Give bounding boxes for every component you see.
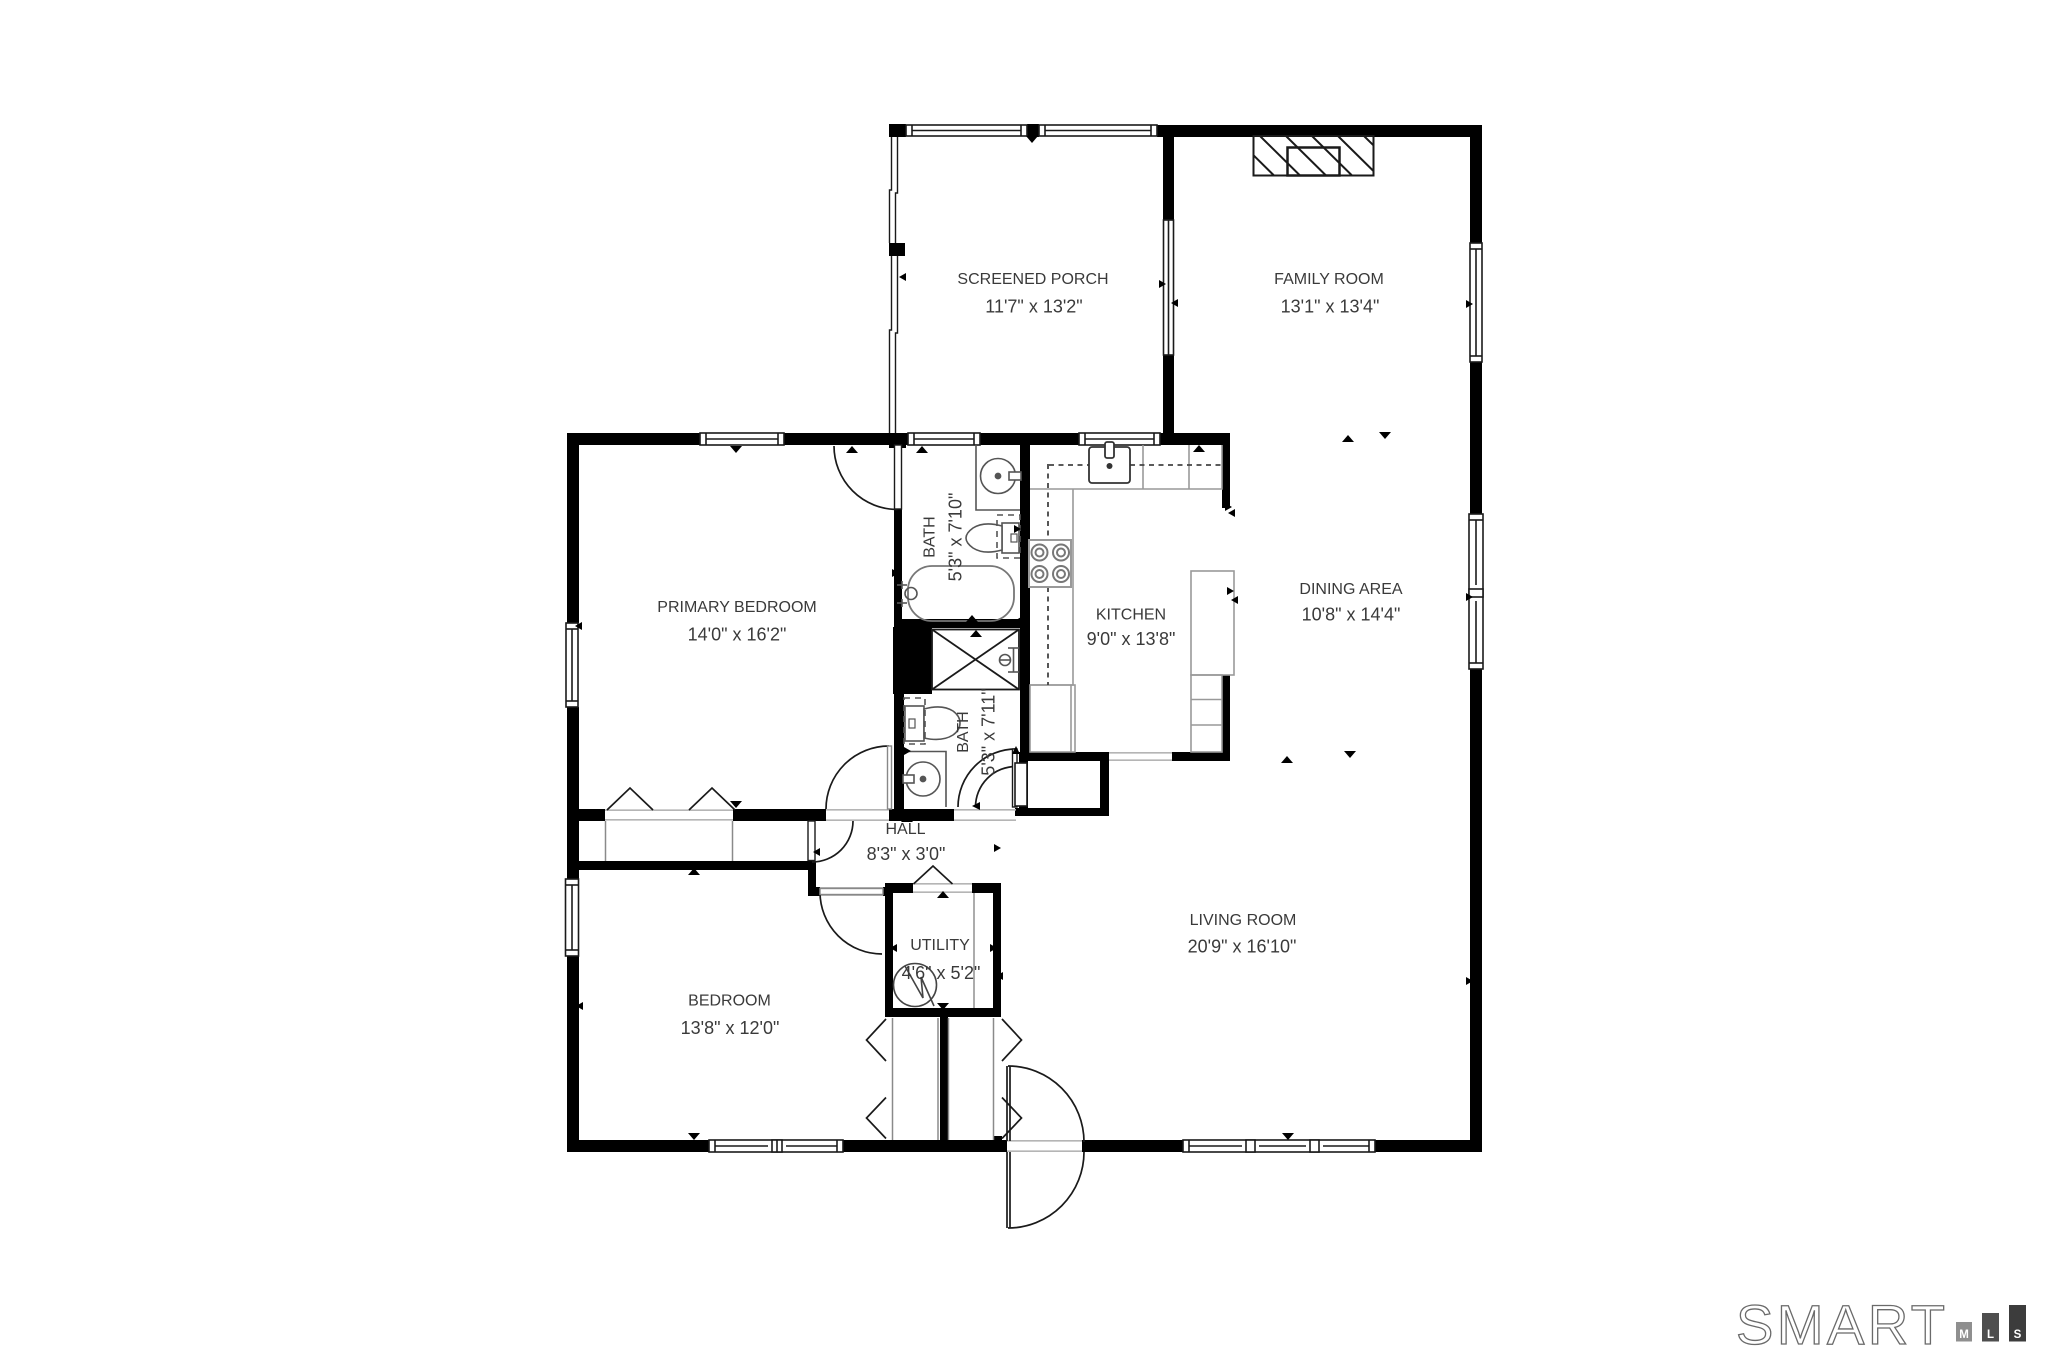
svg-text:20'9" x 16'10": 20'9" x 16'10"	[1188, 937, 1297, 957]
svg-text:5'3" x 7'10": 5'3" x 7'10"	[946, 493, 966, 582]
svg-text:4'6" x 5'2": 4'6" x 5'2"	[902, 963, 981, 983]
svg-text:BATH: BATH	[955, 711, 972, 752]
svg-text:KITCHEN: KITCHEN	[1096, 607, 1166, 624]
svg-text:M: M	[1959, 1329, 1969, 1341]
svg-text:S: S	[2014, 1329, 2022, 1341]
svg-text:UTILITY: UTILITY	[910, 937, 970, 954]
svg-text:HALL: HALL	[885, 821, 925, 838]
svg-text:L: L	[1987, 1329, 1994, 1341]
svg-text:9'0" x 13'8": 9'0" x 13'8"	[1087, 629, 1176, 649]
svg-text:BATH: BATH	[922, 516, 939, 557]
svg-text:5'3" x 7'11": 5'3" x 7'11"	[979, 688, 999, 775]
svg-text:FAMILY ROOM: FAMILY ROOM	[1274, 271, 1384, 288]
svg-text:SMART: SMART	[1736, 1293, 1949, 1356]
svg-text:14'0" x 16'2": 14'0" x 16'2"	[688, 625, 787, 645]
svg-text:8'3" x 3'0": 8'3" x 3'0"	[867, 844, 946, 864]
svg-text:13'1" x 13'4": 13'1" x 13'4"	[1281, 297, 1380, 317]
svg-text:11'7" x 13'2": 11'7" x 13'2"	[985, 297, 1082, 317]
svg-text:DINING AREA: DINING AREA	[1299, 581, 1402, 598]
svg-text:BEDROOM: BEDROOM	[688, 993, 771, 1010]
svg-text:PRIMARY BEDROOM: PRIMARY BEDROOM	[657, 599, 816, 616]
svg-text:13'8" x 12'0": 13'8" x 12'0"	[681, 1018, 780, 1038]
svg-text:10'8" x 14'4": 10'8" x 14'4"	[1302, 605, 1401, 625]
svg-text:LIVING ROOM: LIVING ROOM	[1190, 912, 1297, 929]
svg-text:SCREENED PORCH: SCREENED PORCH	[957, 271, 1108, 288]
